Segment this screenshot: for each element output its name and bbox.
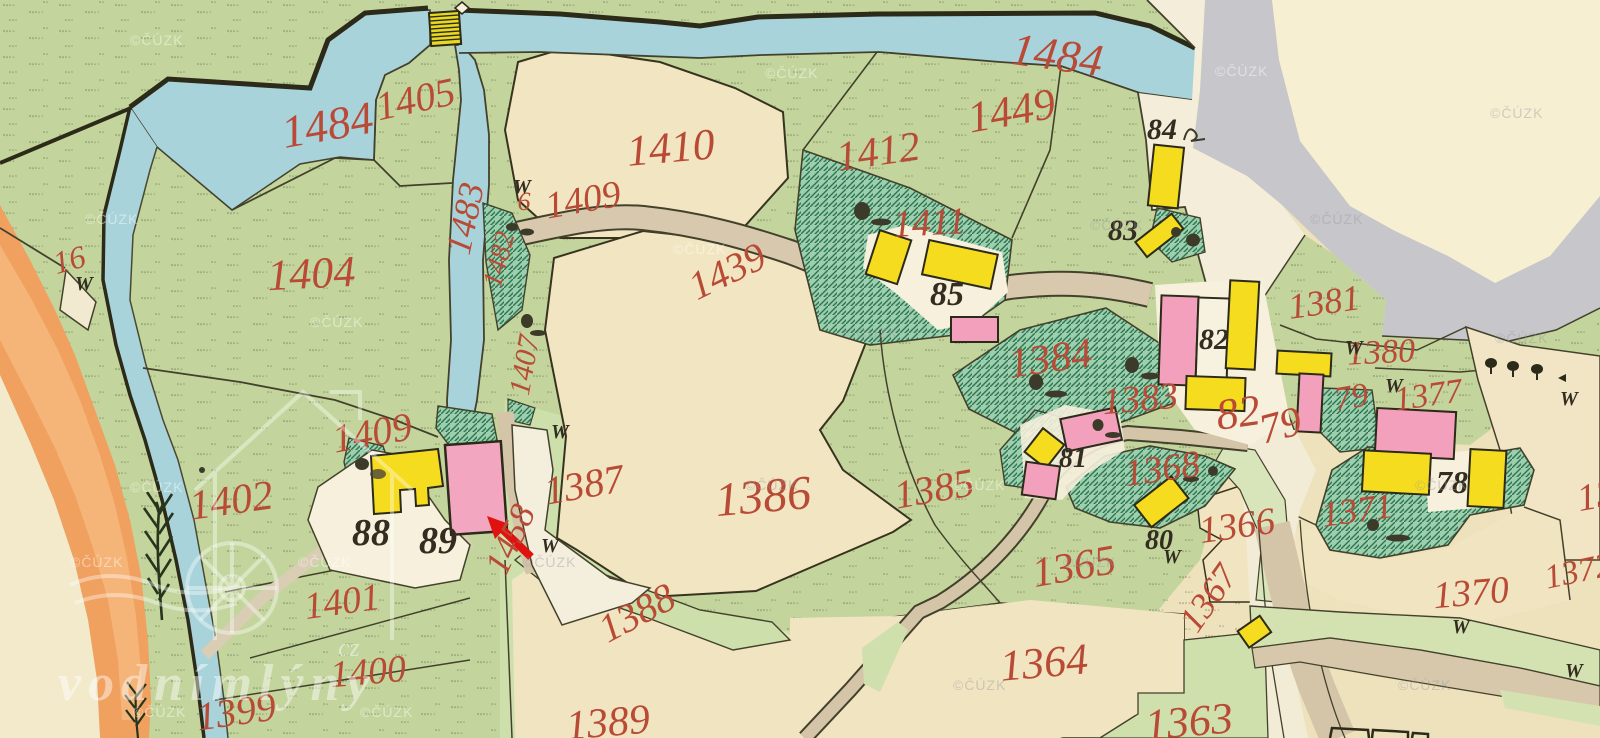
- svg-text:79: 79: [1331, 376, 1371, 418]
- svg-text:W: W: [513, 176, 532, 198]
- svg-text:W: W: [1452, 616, 1471, 638]
- svg-text:©ČÚZK: ©ČÚZK: [130, 32, 183, 48]
- svg-text:©ČÚZK: ©ČÚZK: [745, 477, 798, 493]
- svg-text:vodnímlýny: vodnímlýny: [58, 655, 376, 712]
- svg-text:©ČÚZK: ©ČÚZK: [845, 325, 898, 341]
- svg-text:cz: cz: [338, 633, 360, 662]
- svg-text:W: W: [1560, 388, 1579, 410]
- svg-text:©ČÚZK: ©ČÚZK: [298, 554, 351, 570]
- svg-text:©ČÚZK: ©ČÚZK: [1398, 677, 1451, 693]
- svg-text:1363: 1363: [1143, 693, 1235, 738]
- svg-text:W: W: [1345, 337, 1364, 359]
- svg-text:©ČÚZK: ©ČÚZK: [952, 477, 1005, 493]
- svg-text:©ČÚZK: ©ČÚZK: [1490, 105, 1543, 121]
- svg-text:©ČÚZK: ©ČÚZK: [85, 211, 138, 227]
- svg-text:©ČÚZK: ©ČÚZK: [130, 479, 183, 495]
- svg-text:82: 82: [1199, 323, 1229, 356]
- svg-text:1389: 1389: [564, 696, 652, 738]
- svg-text:1410: 1410: [625, 119, 717, 175]
- svg-text:W: W: [551, 421, 570, 443]
- svg-text:©ČÚZK: ©ČÚZK: [1090, 217, 1143, 233]
- svg-text:W: W: [1163, 546, 1182, 568]
- svg-text:1383: 1383: [1100, 375, 1179, 423]
- svg-text:©ČÚZK: ©ČÚZK: [953, 677, 1006, 693]
- svg-text:©ČÚZK: ©ČÚZK: [1063, 554, 1116, 570]
- svg-text:1411: 1411: [892, 200, 967, 246]
- svg-text:88: 88: [352, 512, 390, 554]
- svg-text:©ČÚZK: ©ČÚZK: [673, 241, 726, 257]
- svg-text:©ČÚZK: ©ČÚZK: [1215, 63, 1268, 79]
- svg-text:©ČÚZK: ©ČÚZK: [1310, 211, 1363, 227]
- svg-text:W: W: [1385, 375, 1404, 397]
- svg-text:1404: 1404: [266, 247, 356, 301]
- svg-text:©ČÚZK: ©ČÚZK: [1495, 330, 1548, 346]
- svg-text:W: W: [1565, 660, 1584, 682]
- svg-text:89: 89: [419, 520, 457, 562]
- svg-text:©ČÚZK: ©ČÚZK: [765, 65, 818, 81]
- svg-text:1364: 1364: [998, 634, 1090, 690]
- svg-text:1386: 1386: [713, 466, 813, 527]
- svg-text:©ČÚZK: ©ČÚZK: [310, 314, 363, 330]
- svg-text:1370: 1370: [1431, 569, 1510, 617]
- svg-text:85: 85: [930, 276, 964, 313]
- svg-text:84: 84: [1147, 113, 1177, 146]
- svg-text:81: 81: [1059, 443, 1087, 474]
- svg-text:W: W: [75, 273, 94, 295]
- svg-text:©ČÚZK: ©ČÚZK: [1415, 477, 1468, 493]
- svg-text:©ČÚZK: ©ČÚZK: [523, 554, 576, 570]
- svg-text:©ČÚZK: ©ČÚZK: [70, 554, 123, 570]
